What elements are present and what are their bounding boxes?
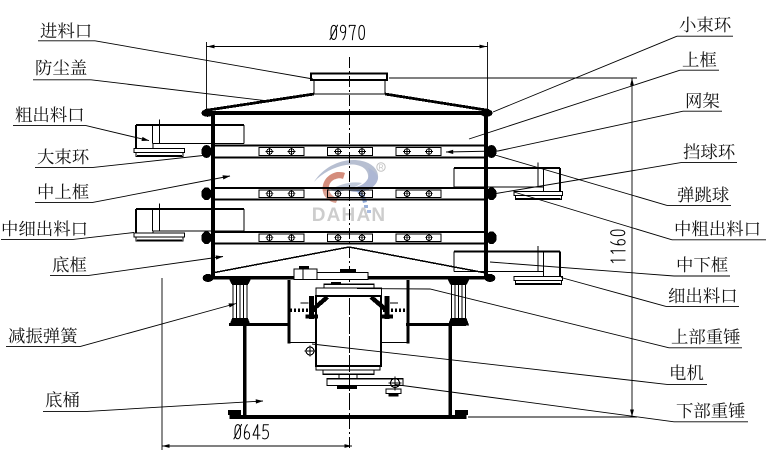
svg-text:DAHAN: DAHAN xyxy=(312,205,387,226)
svg-text:R: R xyxy=(378,165,383,172)
